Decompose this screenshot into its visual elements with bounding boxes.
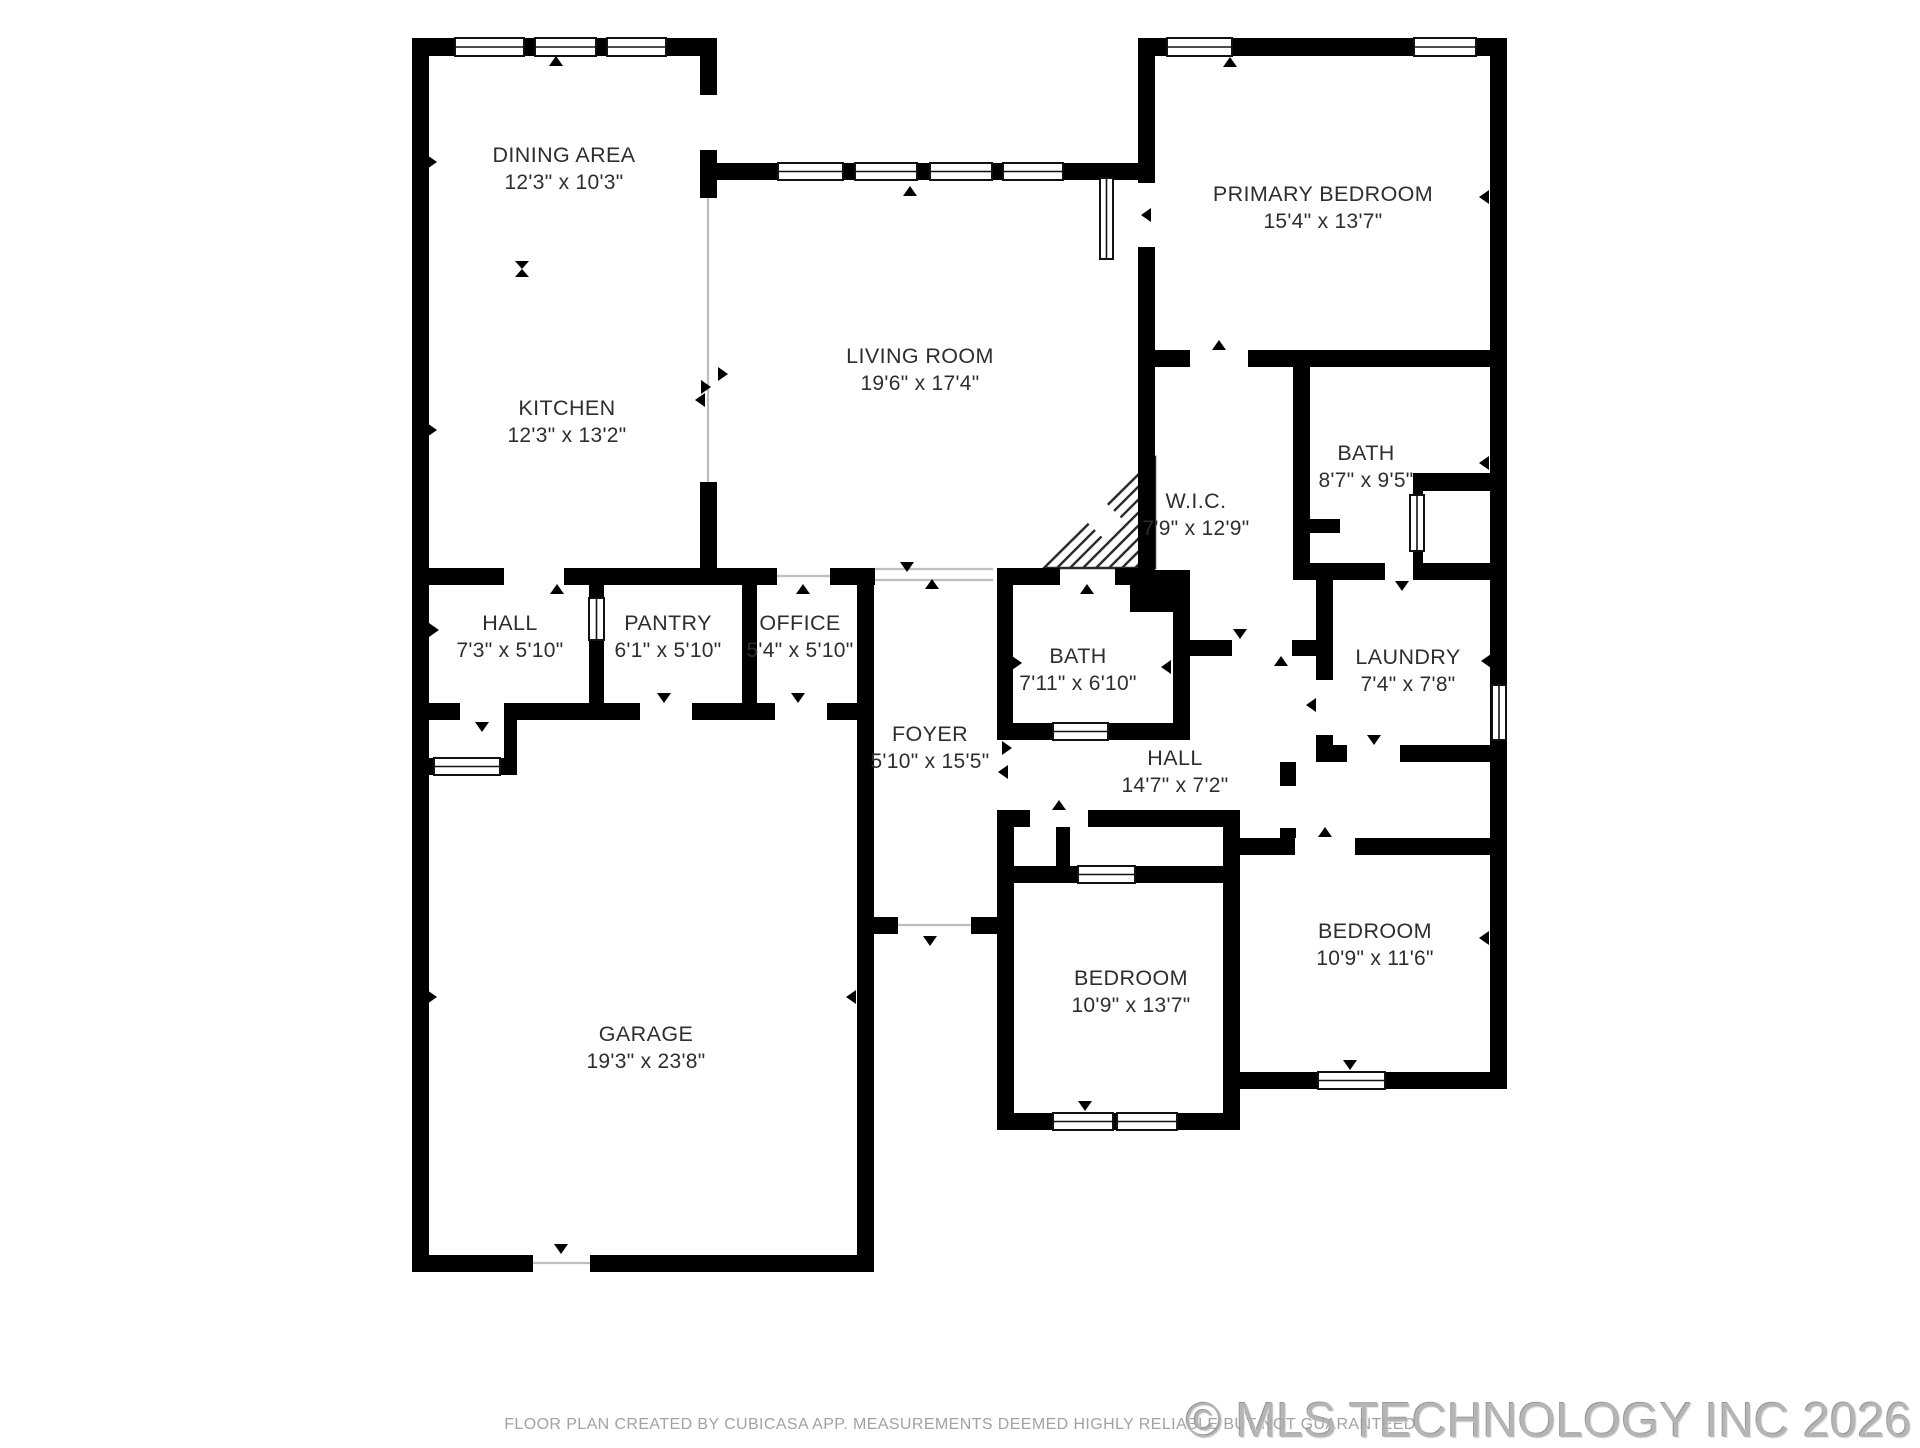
wall xyxy=(1293,367,1310,563)
wall xyxy=(1240,838,1295,855)
door-arrow xyxy=(554,1244,568,1254)
wall xyxy=(1355,838,1490,855)
room-label-office: OFFICE xyxy=(759,611,840,635)
wall xyxy=(1413,473,1423,497)
room-label-wic: W.I.C. xyxy=(1166,489,1227,513)
room-dims-living: 19'6" x 17'4" xyxy=(860,372,979,395)
room-label-bath-primary: BATH xyxy=(1337,441,1394,465)
door-arrow xyxy=(923,936,937,946)
room-dims-hall-upper: 7'3" x 5'10" xyxy=(456,639,563,662)
room-label-pantry: PANTRY xyxy=(624,611,712,635)
wall xyxy=(1248,350,1507,367)
room-label-hall-upper: HALL xyxy=(482,611,537,635)
wall xyxy=(1417,473,1492,491)
wall xyxy=(1013,866,1078,883)
wall xyxy=(1333,745,1347,762)
wall xyxy=(700,163,1155,180)
wall xyxy=(1155,350,1190,367)
wall xyxy=(412,38,429,1272)
wall xyxy=(1138,247,1155,367)
door-arrow xyxy=(475,722,489,732)
wall xyxy=(1013,810,1030,827)
wall xyxy=(997,568,1060,585)
door-arrow xyxy=(429,623,439,637)
door-arrow xyxy=(1212,340,1226,350)
wall xyxy=(1280,828,1296,838)
door-arrow xyxy=(1318,827,1332,837)
room-label-kitchen: KITCHEN xyxy=(518,396,615,420)
wall xyxy=(692,703,775,720)
center-marker xyxy=(515,261,529,269)
door-arrow xyxy=(549,56,563,66)
door-arrow xyxy=(1367,735,1381,745)
wall xyxy=(1056,827,1070,866)
wall xyxy=(1088,810,1240,827)
wall xyxy=(429,703,460,720)
door-arrow xyxy=(791,693,805,703)
room-label-dining: DINING AREA xyxy=(493,143,636,167)
door-arrow xyxy=(1078,1101,1092,1111)
room-label-primary-bedroom: PRIMARY BEDROOM xyxy=(1213,182,1433,206)
door-arrow xyxy=(695,393,705,407)
door-arrow xyxy=(427,423,437,437)
room-dims-bath-hall: 7'11" x 6'10" xyxy=(1019,672,1137,695)
door-arrow xyxy=(1233,629,1247,639)
wall xyxy=(412,1255,533,1272)
wall xyxy=(504,703,640,720)
door-arrow xyxy=(1080,584,1094,594)
door-arrow xyxy=(550,584,564,594)
door-arrow xyxy=(903,186,917,196)
wall xyxy=(1293,563,1385,580)
wall xyxy=(1292,640,1333,656)
room-label-foyer: FOYER xyxy=(892,722,968,746)
wall xyxy=(717,568,777,585)
room-dims-bath-primary: 8'7" x 9'5" xyxy=(1318,469,1413,492)
wall xyxy=(700,38,717,95)
wall xyxy=(1417,563,1492,580)
wall xyxy=(589,640,604,703)
copyright-watermark: © MLS TECHNOLOGY INC 2026 xyxy=(1186,1397,1912,1446)
room-label-bedroom-right: BEDROOM xyxy=(1318,919,1432,943)
door-arrow xyxy=(427,155,437,169)
door-arrow xyxy=(1161,660,1171,674)
center-marker xyxy=(515,269,529,277)
door-arrow xyxy=(1479,190,1489,204)
door-arrow xyxy=(427,990,437,1004)
room-dims-laundry: 7'4" x 7'8" xyxy=(1360,673,1455,696)
floor-plan-page: DINING AREA12'3" x 10'3"KITCHEN12'3" x 1… xyxy=(0,0,1920,1440)
wall xyxy=(1138,38,1155,183)
wall xyxy=(1115,568,1155,585)
door-arrow xyxy=(1002,741,1012,755)
wall xyxy=(590,1255,874,1272)
wall xyxy=(830,568,875,585)
room-dims-pantry: 6'1" x 5'10" xyxy=(614,639,721,662)
room-dims-wic: 7'9" x 12'9" xyxy=(1142,517,1249,540)
wall xyxy=(1223,810,1240,1130)
door-arrow xyxy=(1395,581,1409,591)
door-arrow xyxy=(796,584,810,594)
wall xyxy=(589,585,604,598)
room-dims-garage: 19'3" x 23'8" xyxy=(586,1050,705,1073)
room-dims-dining: 12'3" x 10'3" xyxy=(504,171,623,194)
wall xyxy=(429,568,504,585)
door-arrow xyxy=(1481,654,1491,668)
room-label-garage: GARAGE xyxy=(599,1022,693,1046)
door-arrow xyxy=(1274,656,1288,666)
wall xyxy=(1280,762,1296,786)
door-arrow xyxy=(1012,656,1022,670)
room-dims-bedroom-right: 10'9" x 11'6" xyxy=(1316,947,1434,970)
door-arrow xyxy=(1479,931,1489,945)
room-dims-kitchen: 12'3" x 13'2" xyxy=(507,424,626,447)
wall xyxy=(1490,38,1507,1089)
room-label-hall-lower: HALL xyxy=(1147,746,1202,770)
door-arrow xyxy=(1343,1060,1357,1070)
door-arrow xyxy=(1052,800,1066,810)
wall xyxy=(1173,612,1190,740)
room-label-bedroom-mid: BEDROOM xyxy=(1074,966,1188,990)
wall xyxy=(1108,723,1190,740)
room-dims-primary-bedroom: 15'4" x 13'7" xyxy=(1263,210,1382,233)
door-arrow xyxy=(998,765,1008,779)
wall xyxy=(857,585,874,1272)
door-arrow xyxy=(1223,57,1237,67)
room-dims-bedroom-mid: 10'9" x 13'7" xyxy=(1071,994,1190,1017)
wall xyxy=(997,723,1053,740)
room-label-bath-hall: BATH xyxy=(1049,644,1106,668)
wall xyxy=(1293,519,1340,533)
wall xyxy=(1316,580,1333,680)
door-arrow xyxy=(1141,208,1151,222)
wall xyxy=(1190,640,1232,656)
door-arrow xyxy=(1479,456,1489,470)
wall xyxy=(997,810,1014,1130)
door-arrow xyxy=(657,693,671,703)
floor-plan-drawing: DINING AREA12'3" x 10'3"KITCHEN12'3" x 1… xyxy=(0,0,1920,1440)
room-dims-hall-lower: 14'7" x 7'2" xyxy=(1121,774,1228,797)
wall xyxy=(1413,549,1423,580)
wall xyxy=(997,585,1013,740)
door-arrow xyxy=(1306,698,1316,712)
room-label-laundry: LAUNDRY xyxy=(1355,645,1460,669)
wall xyxy=(874,917,898,934)
door-arrow xyxy=(701,380,711,394)
room-dims-foyer: 5'10" x 15'5" xyxy=(870,750,989,773)
wall xyxy=(564,568,717,585)
door-arrow xyxy=(718,367,728,381)
door-arrow xyxy=(900,562,914,572)
room-dims-office: 5'4" x 5'10" xyxy=(746,639,853,662)
door-arrow xyxy=(846,990,856,1004)
room-label-living: LIVING ROOM xyxy=(846,344,994,368)
wall xyxy=(1316,735,1333,762)
wall xyxy=(1400,745,1490,762)
